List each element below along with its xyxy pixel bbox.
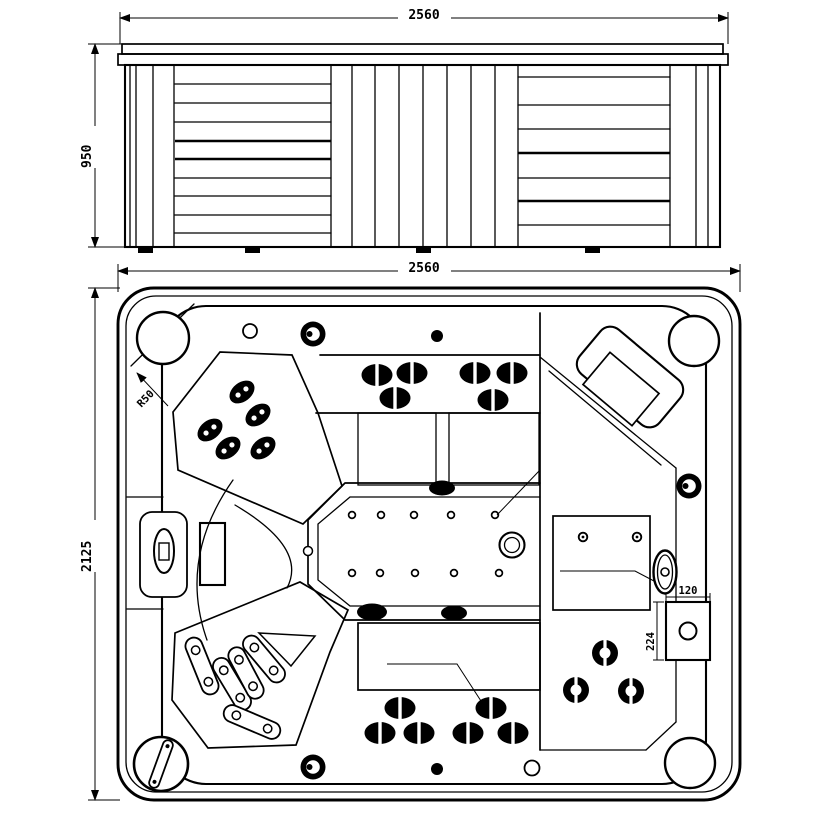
lounger-pillow	[200, 523, 225, 585]
control-box: 120 224	[645, 585, 710, 660]
hydro-jet	[365, 722, 396, 745]
seat-jet	[241, 399, 275, 431]
power-jet	[301, 322, 326, 347]
hydro-jet	[478, 389, 509, 412]
footwell-suction-dots	[349, 512, 503, 577]
cabinet-horizontal-panel-right	[518, 65, 670, 247]
drain-cap	[500, 533, 525, 558]
hydro-jet	[380, 387, 411, 410]
upper-left-seat	[173, 352, 342, 524]
control-width-label: 120	[679, 585, 698, 597]
strip-jet	[221, 702, 283, 741]
spa-cover-lid	[118, 44, 728, 65]
leader-line	[497, 470, 540, 515]
cabinet-horizontal-panel-left	[175, 65, 331, 247]
hydro-jet	[497, 362, 528, 385]
side-width-label: 2560	[408, 8, 439, 23]
side-ellipse-jet	[654, 551, 677, 594]
rim-cup-holder	[525, 761, 540, 776]
footwell-pad	[441, 606, 467, 621]
cabinet-right-post	[696, 65, 708, 247]
corner-jet-top-left	[137, 312, 189, 364]
hydro-jet	[498, 722, 529, 745]
round-jet	[563, 677, 589, 703]
hydro-jet	[460, 362, 491, 385]
filter-valve-handle	[134, 737, 188, 791]
plan-depth-label: 2125	[80, 541, 95, 572]
corner-jet-top-right	[669, 316, 719, 366]
rim-cup-holder	[243, 324, 257, 338]
dimension-side-overall-width: 2560	[120, 8, 728, 44]
lounger	[197, 480, 292, 640]
round-jet	[618, 678, 644, 704]
control-box-port	[680, 623, 697, 640]
hydro-jet	[385, 697, 416, 720]
spa-technical-drawing: 2560 950	[0, 0, 821, 817]
hydro-jet	[362, 364, 393, 387]
air-control-dot	[579, 533, 588, 542]
spa-cabinet	[125, 65, 720, 253]
dimension-side-height: 950	[80, 44, 127, 247]
round-jet	[592, 640, 618, 666]
footwell-pad	[429, 481, 455, 496]
plan-width-label: 2560	[408, 261, 439, 276]
hydro-jet	[397, 362, 428, 385]
hydro-jet	[453, 722, 484, 745]
power-jet	[301, 755, 326, 780]
air-control-dot	[633, 533, 642, 542]
dimension-plan-depth: 2125	[80, 288, 120, 800]
side-elevation-view: 2560 950	[80, 8, 728, 253]
leader-line	[387, 664, 481, 701]
cabinet-left-post	[130, 65, 174, 247]
power-jet	[677, 474, 702, 499]
plan-top-view: 2560 2125 R50	[80, 261, 740, 800]
seat-jet	[246, 432, 280, 464]
cabinet-vertical-panel	[352, 65, 518, 247]
bench-base-panels	[358, 413, 539, 485]
corner-jet-bottom-right	[665, 738, 715, 788]
side-height-label: 950	[80, 144, 95, 168]
rim-dot	[431, 763, 443, 775]
bottom-bench	[358, 623, 540, 745]
footwell	[304, 470, 541, 621]
seat-jet	[225, 376, 259, 408]
control-height-label: 224	[645, 632, 657, 651]
hydro-jet	[404, 722, 435, 745]
footwell-pad	[357, 604, 387, 621]
rim-dot	[431, 330, 443, 342]
right-seat	[553, 516, 654, 704]
top-bench	[316, 355, 540, 413]
leader-line	[560, 571, 654, 581]
side-speaker-pocket	[127, 497, 187, 609]
